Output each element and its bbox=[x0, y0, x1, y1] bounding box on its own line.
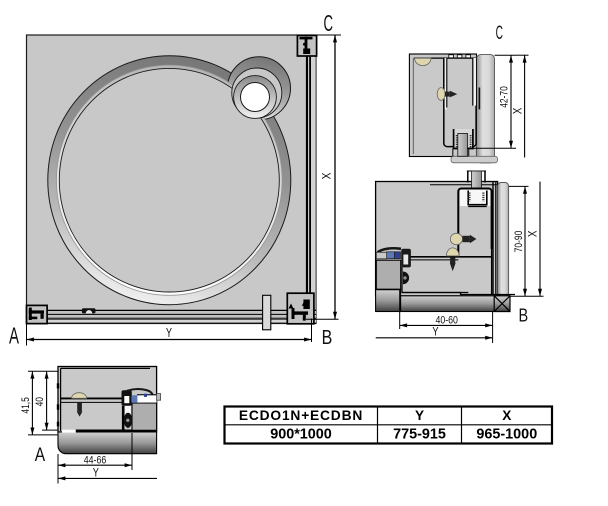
svg-text:Y: Y bbox=[166, 327, 173, 341]
svg-text:X: X bbox=[512, 107, 525, 114]
svg-text:Y: Y bbox=[93, 468, 99, 480]
svg-text:B: B bbox=[519, 305, 529, 326]
svg-text:X: X bbox=[527, 230, 540, 237]
svg-text:B: B bbox=[322, 325, 333, 348]
svg-text:C: C bbox=[496, 23, 503, 44]
svg-text:40: 40 bbox=[34, 397, 46, 406]
svg-text:ECDO1N+ECDBN: ECDO1N+ECDBN bbox=[239, 408, 363, 423]
svg-text:965-1000: 965-1000 bbox=[476, 427, 537, 443]
svg-text:Y: Y bbox=[415, 408, 424, 423]
svg-text:X: X bbox=[321, 172, 334, 179]
svg-text:A: A bbox=[35, 443, 46, 465]
svg-text:900*1000: 900*1000 bbox=[270, 427, 332, 443]
svg-text:A: A bbox=[9, 323, 20, 349]
svg-text:X: X bbox=[502, 408, 511, 423]
svg-text:44-66: 44-66 bbox=[84, 455, 107, 467]
svg-text:C: C bbox=[324, 10, 334, 36]
svg-text:42-70: 42-70 bbox=[499, 86, 511, 108]
svg-text:70-90: 70-90 bbox=[513, 231, 525, 253]
svg-text:Y: Y bbox=[432, 327, 438, 339]
svg-text:40-60: 40-60 bbox=[435, 315, 458, 327]
svg-text:775-915: 775-915 bbox=[393, 427, 446, 443]
svg-text:41,5: 41,5 bbox=[20, 397, 32, 413]
